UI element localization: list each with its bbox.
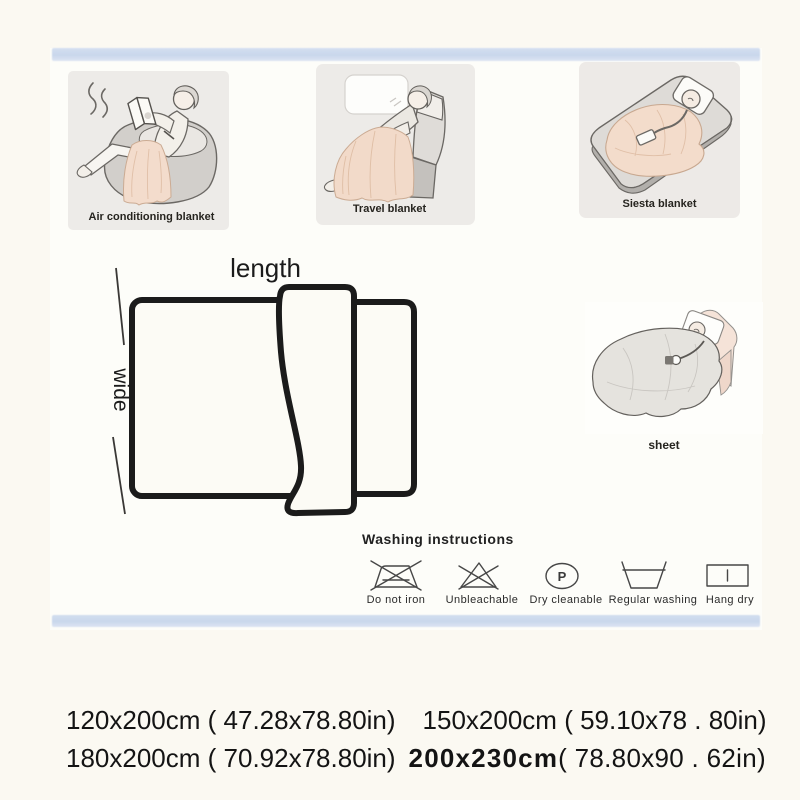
svg-text:P: P: [558, 569, 567, 584]
